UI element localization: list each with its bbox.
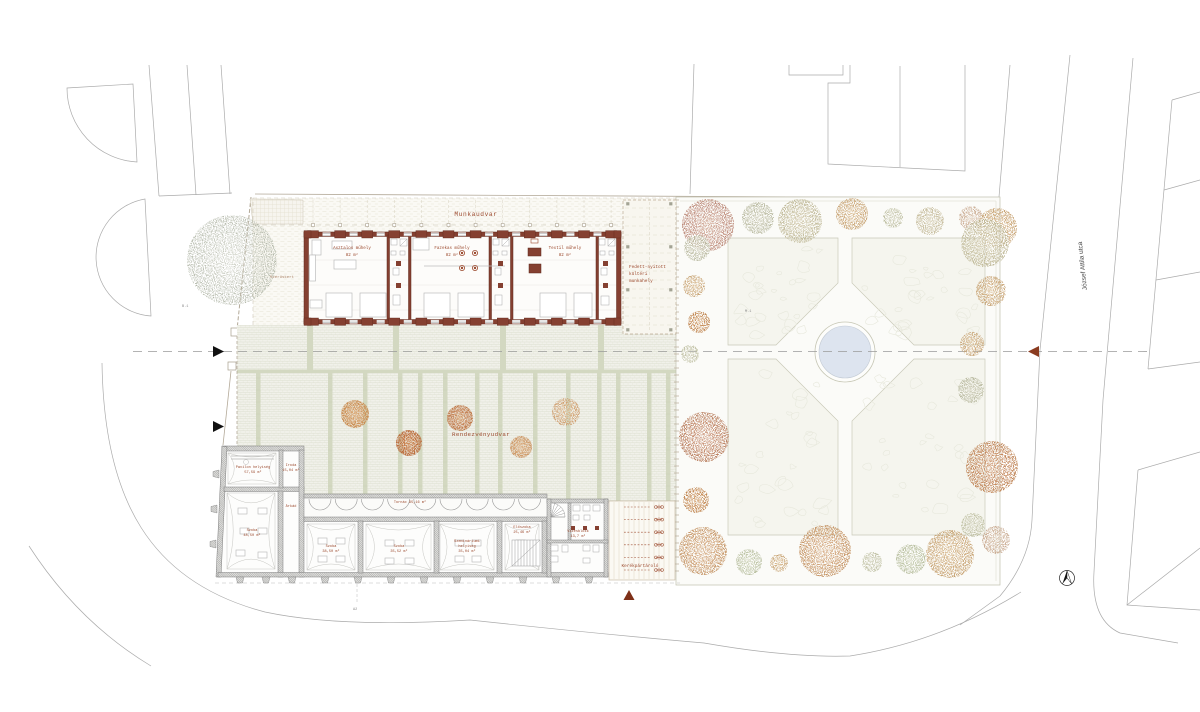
svg-text:Rendezvényudvar: Rendezvényudvar xyxy=(452,431,510,438)
svg-text:57,59 m²: 57,59 m² xyxy=(244,471,261,475)
svg-text:Szoba: Szoba xyxy=(394,544,406,549)
svg-text:Textil műhely: Textil műhely xyxy=(549,246,582,251)
svg-text:Szemináriumi: Szemináriumi xyxy=(454,539,480,544)
svg-text:Szérűskert: Szérűskert xyxy=(270,275,294,280)
svg-text:Pavilon helyiség: Pavilon helyiség xyxy=(236,465,271,470)
svg-text:Kerékpártároló: Kerékpártároló xyxy=(622,564,659,569)
svg-text:38,50 m²: 38,50 m² xyxy=(322,550,339,554)
svg-text:Iroda: Iroda xyxy=(286,463,298,468)
svg-text:13,7 m²: 13,7 m² xyxy=(570,535,585,539)
svg-text:35,04 m²: 35,04 m² xyxy=(458,550,475,554)
svg-text:Szoba: Szoba xyxy=(247,528,259,533)
svg-text:Vizesblokk: Vizesblokk xyxy=(567,529,589,534)
svg-text:Asztalos műhely: Asztalos műhely xyxy=(333,246,371,251)
svg-text:48,50 m²: 48,50 m² xyxy=(243,534,260,538)
svg-text:A2: A2 xyxy=(353,608,357,612)
svg-text:kültéri: kültéri xyxy=(629,272,648,277)
svg-text:Árkád: Árkád xyxy=(286,504,297,509)
svg-text:Munkaudvar: Munkaudvar xyxy=(454,211,497,218)
svg-text:35,52 m²: 35,52 m² xyxy=(390,550,407,554)
svg-text:munkahely: munkahely xyxy=(629,279,653,284)
svg-text:Szoba: Szoba xyxy=(326,544,338,549)
svg-text:Tornác 95,16 m²: Tornác 95,16 m² xyxy=(394,500,426,505)
svg-text:helyiség: helyiség xyxy=(458,544,475,549)
svg-text:Előszoba: Előszoba xyxy=(513,525,531,530)
svg-text:M.1: M.1 xyxy=(745,310,751,314)
svg-text:15,04 m²: 15,04 m² xyxy=(282,469,299,473)
svg-text:B.1: B.1 xyxy=(182,305,188,309)
svg-text:Fedett-nyitott: Fedett-nyitott xyxy=(629,265,666,270)
svg-text:25,46 m²: 25,46 m² xyxy=(513,531,530,535)
svg-text:Fazekas műhely: Fazekas műhely xyxy=(434,246,470,251)
